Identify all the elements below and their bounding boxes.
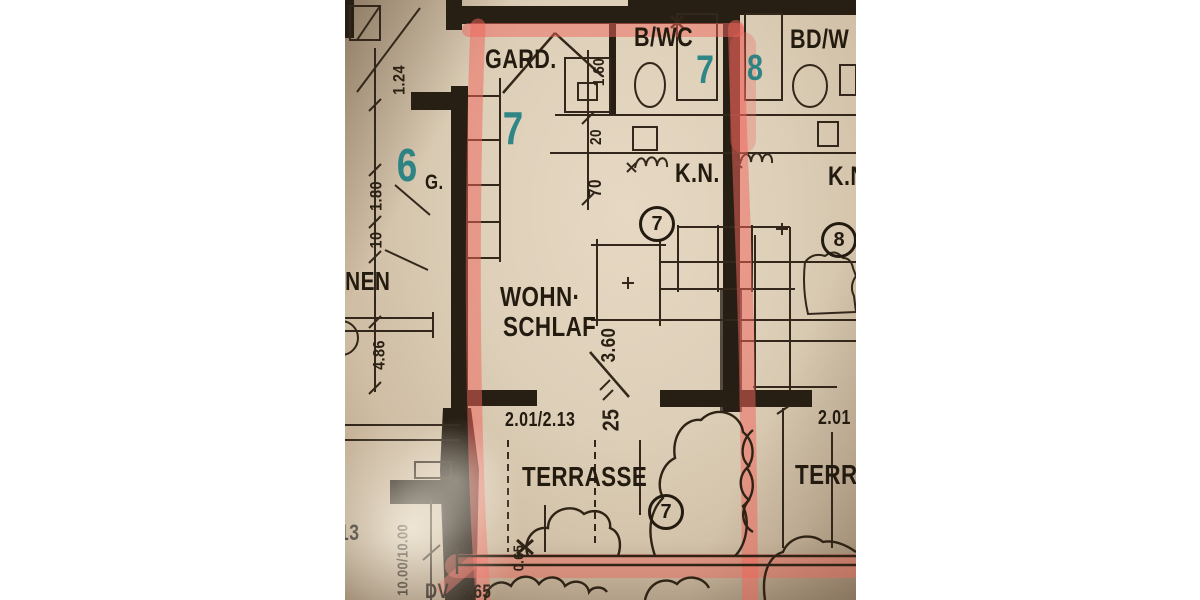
room-label-terrasse-right: TERRA (795, 461, 856, 489)
room-label-bdw: BD/W (790, 26, 849, 53)
room-label-gard: GARD. (485, 46, 557, 73)
teal-unit-6-neighbor: 6 (397, 142, 417, 188)
dim-3-60: 3.60 (599, 328, 619, 363)
room-label-kn-right: K.N (828, 163, 856, 190)
dim-0-65: 0.65 (512, 545, 527, 572)
dim-2-01-right: 2.01 (818, 408, 851, 428)
dim-1-24: 1.24 (391, 65, 408, 95)
room-label-bwc: B/WC (634, 24, 693, 51)
room-label-g: G. (425, 172, 444, 193)
dim-10-00: 10.00/10.00 (396, 524, 411, 596)
dim-1-80: 1.80 (368, 181, 385, 211)
teal-unit-8-bdw: 8 (747, 50, 763, 86)
dim-70: 70 (586, 179, 604, 197)
room-label-terrasse-left: TERRASSE (522, 463, 647, 491)
room-label-inen-fragment: INEN (345, 268, 390, 294)
circled-7-kitchen: 7 (639, 206, 675, 242)
label-dv: DV (425, 581, 449, 600)
screenshot-canvas: GARD. B/WC BD/W G. K.N. K.N WOHN· SCHLAF… (0, 0, 1200, 600)
dim-25: 25 (600, 409, 623, 432)
circled-7-terrace: 7 (648, 494, 684, 530)
dim-20: 20 (589, 129, 605, 145)
room-label-kn-left: K.N. (675, 160, 720, 187)
dim-13-fragment: 13 (345, 522, 359, 544)
dim-2-01-2-13: 2.01/2.13 (505, 410, 575, 430)
teal-unit-7-gard: 7 (503, 105, 523, 151)
dim-1-60: 1.60 (592, 58, 608, 86)
teal-unit-7-bwc: 7 (696, 50, 714, 90)
dim-6-65: 6.65 (460, 583, 491, 600)
dim-10: 10 (368, 232, 385, 249)
floorplan-photo: GARD. B/WC BD/W G. K.N. K.N WOHN· SCHLAF… (345, 0, 856, 600)
room-label-schlaf: SCHLAF (503, 313, 596, 341)
walls (345, 0, 856, 600)
room-label-wohn: WOHN· (500, 283, 580, 311)
circled-8-right-room: 8 (821, 222, 856, 258)
floorplan-linework (345, 0, 856, 600)
dim-4-86: 4.86 (371, 340, 388, 370)
